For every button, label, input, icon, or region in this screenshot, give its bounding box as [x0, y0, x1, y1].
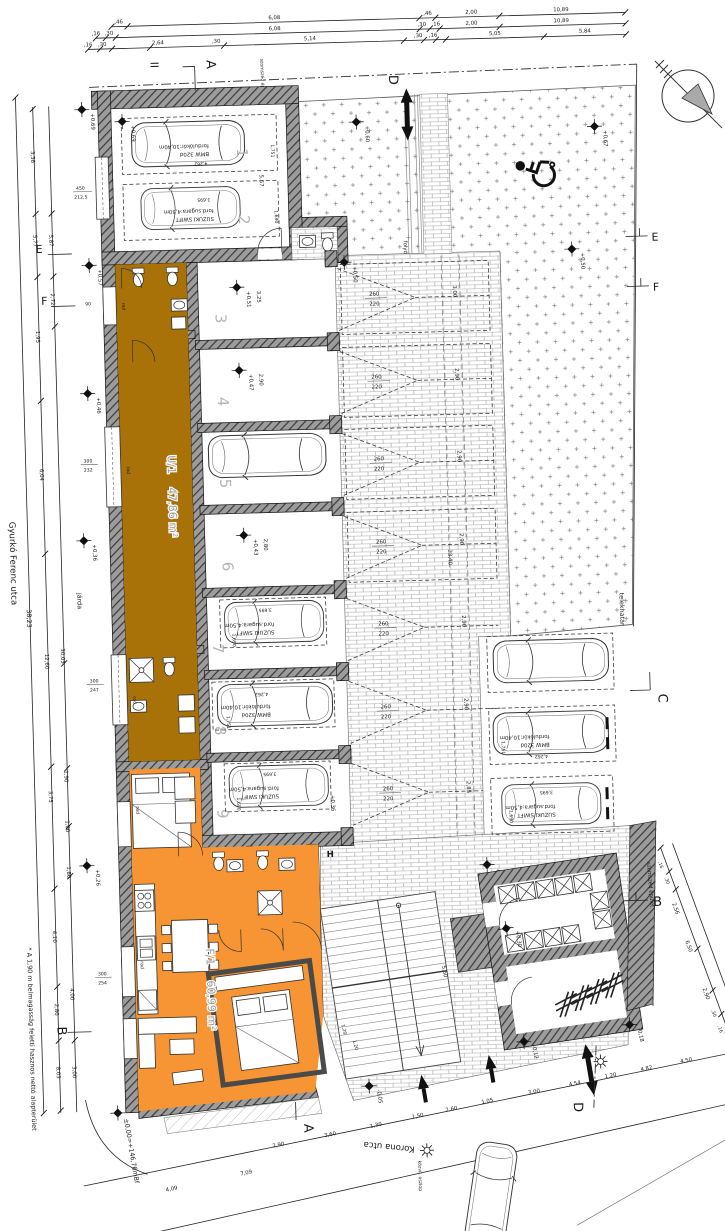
window-dim: 90	[85, 301, 91, 307]
section-marker-d-top: D	[385, 75, 400, 85]
radiator-label: rad	[120, 302, 126, 310]
level-label: +0,69	[129, 125, 135, 142]
section-marker-f-right: F	[653, 281, 660, 294]
lamp-post-icon	[420, 1143, 434, 1157]
dim-label: 2,00	[465, 21, 478, 27]
dim-label: 220	[372, 384, 383, 390]
door-opening	[258, 248, 282, 260]
dim-label: 2,80	[262, 539, 268, 552]
stove-icon	[135, 890, 155, 912]
car-label: BMW 320d	[242, 711, 271, 718]
level-label: +0,50	[351, 266, 357, 283]
stall-number: 9	[213, 809, 231, 819]
stall-number: 7	[209, 644, 227, 654]
dim-label: 1,690	[235, 797, 241, 810]
radiator-label: rad	[134, 806, 140, 814]
dim-label: 2,90	[453, 368, 459, 381]
dim-label: 4,82	[640, 1065, 653, 1073]
car-label: SUZUKI SWIFT	[240, 792, 279, 799]
street-name-bottom: Korona utca	[363, 1139, 415, 1154]
kitchen	[134, 884, 158, 1015]
car-label: BMW 320d	[180, 150, 209, 157]
dim-label: 260	[371, 374, 382, 380]
dim-label: 6,04	[38, 469, 44, 482]
level-label: +0,60	[363, 126, 369, 143]
dim-label: 1,50	[411, 1112, 425, 1120]
dim-label: ,30	[98, 42, 107, 48]
radiator-label: rad	[131, 696, 137, 704]
unit-name: F/1	[203, 948, 216, 965]
dim-label: 4,09	[165, 1185, 179, 1193]
window	[121, 946, 135, 996]
dim-label: ,30	[709, 1009, 717, 1018]
dim-label: 1,20	[604, 1072, 618, 1080]
window-dim: 300	[98, 971, 107, 977]
dim-label: 4,50	[680, 1057, 694, 1065]
dim-label: 1,05	[481, 1098, 494, 1106]
sink-icon	[299, 235, 315, 247]
note-label: * A 1,90 m belmagasság feletti hasznos n…	[25, 947, 38, 1131]
dim-label: ,30	[417, 22, 426, 28]
window-dim: 300	[84, 458, 93, 464]
dim-label: 5,05	[489, 31, 501, 37]
dim-label: 1,751	[269, 144, 275, 157]
level-label: +0,36	[329, 795, 335, 812]
dim-label: 2,90	[701, 987, 711, 1001]
level-mark	[114, 114, 129, 129]
dining-table	[171, 919, 208, 972]
dim-label: 6,08	[268, 15, 281, 21]
dim-label: 260	[381, 704, 392, 710]
dim-label: 2,80	[53, 1004, 59, 1017]
dim-label: ,46	[423, 11, 432, 17]
dim-label: 4,262	[255, 691, 268, 697]
stairs	[320, 892, 460, 1079]
dim-label: 260	[383, 786, 394, 792]
dim-label: 1,690	[508, 810, 514, 823]
dim-label: 8,03	[54, 1067, 60, 1079]
dim-label: 2,90	[455, 450, 461, 463]
dim-label: 1,00	[64, 820, 70, 833]
appliance	[178, 695, 194, 711]
dim-label: 1,30	[370, 1122, 384, 1130]
dim-label: 10,89	[553, 18, 569, 24]
dim-label: 2,60	[445, 1105, 459, 1113]
section-marker-b-left: B	[53, 1026, 68, 1035]
kitchen-sink-icon	[137, 936, 156, 960]
sink-icon	[279, 858, 295, 870]
sofa	[138, 1017, 196, 1035]
car-label: fordulókör:10,40m	[221, 703, 271, 711]
dim-label: 2,90	[458, 533, 464, 546]
window-dim: 254	[98, 980, 107, 986]
dim-label: 3,38	[29, 151, 35, 164]
dim-label: 220	[374, 466, 385, 472]
dim-label: 5,14	[304, 36, 317, 42]
dim-label: ,30	[414, 33, 423, 39]
dim-label: 220	[376, 549, 387, 555]
level-label: +0,57	[96, 269, 102, 286]
dim-label: 1,690	[273, 210, 279, 223]
dim-label: ,16	[431, 22, 440, 28]
h-mark: H	[327, 850, 334, 860]
level-label: +0,69	[89, 113, 95, 130]
section-marker-i: II	[147, 61, 160, 68]
radiator-label: rad	[125, 466, 131, 474]
level-label: -0,18	[636, 1028, 645, 1043]
window	[105, 427, 122, 507]
dim-label: 6,08	[269, 26, 282, 32]
stall-number: 1	[233, 148, 251, 158]
dim-label: 7,09	[240, 1169, 254, 1177]
car-label: fordulókör:10,40m	[159, 142, 209, 150]
dim-label: 220	[381, 714, 392, 720]
dim-label: 2,90	[460, 615, 466, 628]
dim-label: 220	[383, 796, 394, 802]
shower-icon	[258, 890, 283, 915]
dim-label: 4,54	[568, 1080, 582, 1088]
dim-label: ,16	[429, 33, 438, 39]
dim-label: 4,262	[194, 160, 207, 166]
dim-label: 4,00	[68, 988, 74, 1001]
car-label: SUZUKI SWIFT	[516, 811, 555, 818]
dim-label: 220	[378, 631, 389, 637]
car-label: fordulókör:10,40m	[500, 733, 550, 741]
dim-label: ,16	[716, 1025, 724, 1034]
dim-label: 3,695	[540, 789, 553, 795]
stall-number: 3	[212, 314, 230, 324]
lamp-label: közvil. oszlop	[416, 1161, 423, 1192]
level-label: +0,51	[245, 291, 251, 308]
dim-label: 260	[369, 291, 380, 297]
dim-label: 1,90	[62, 770, 68, 783]
dim-label: 2,90	[462, 698, 468, 711]
dim-label: 30,03	[59, 648, 65, 664]
dim-label: 5,84	[579, 28, 592, 34]
dim-label: 5,87	[47, 234, 53, 246]
stall-number: 6	[218, 561, 236, 571]
section-marker-b-right: B	[653, 895, 662, 910]
dim-label: 23,40	[446, 549, 452, 565]
street-car	[460, 1140, 521, 1231]
dim-label: ,46	[114, 19, 123, 25]
dim-label: 3,00	[70, 1066, 76, 1079]
appliance	[179, 717, 195, 733]
dim-label: 3,695	[259, 607, 272, 613]
compass-needle	[682, 84, 712, 114]
section-marker-a-bottom: A	[300, 1124, 315, 1133]
dim-label: 2,56	[670, 902, 680, 916]
datum-label: ±0,00=+146,76mBf	[122, 1118, 141, 1185]
sink-icon	[171, 299, 187, 311]
level-label: +0,67	[602, 130, 608, 147]
stall-number: 4	[214, 397, 232, 407]
level-label: +0,47	[247, 374, 253, 391]
window	[103, 287, 117, 325]
level-label: +0,43	[252, 539, 258, 556]
dim-label: 3,695	[197, 196, 210, 202]
dim-label: 260	[374, 456, 385, 462]
dim-label: 3,25	[255, 291, 261, 303]
sidewalk-label: járda	[75, 592, 83, 609]
garage-hall: fordulókör:10,40m BMW 320d 4,262 1,751 f…	[94, 110, 282, 265]
level-label: +0,46	[95, 397, 101, 414]
section-marker-e-left: E	[35, 243, 42, 256]
unit-name: U/1	[164, 455, 178, 474]
unit-area: 60,99 m²	[204, 980, 218, 1030]
sink-icon	[227, 859, 243, 871]
dim-label: 6,50	[683, 940, 693, 954]
property-line-label: telekhatár	[617, 593, 626, 626]
level-label: -0,05	[375, 1089, 383, 1104]
radiator-label: rad	[139, 961, 145, 969]
dim-label: 2,64	[152, 40, 165, 46]
dim-label: 5,57	[258, 175, 264, 187]
level-label: +0,26	[94, 869, 100, 886]
dim-label: 4,10	[51, 931, 57, 944]
window-dim: 212,5	[74, 195, 87, 201]
window	[123, 1018, 137, 1058]
car	[493, 635, 609, 686]
window-dim: 232	[84, 467, 93, 473]
car-label: SUZUKI SWIFT	[235, 628, 274, 635]
dim-label: 1,95	[34, 331, 40, 343]
level-label: +0,36	[91, 544, 97, 561]
dim-label: 2,90	[257, 374, 263, 387]
outbuilding: +0,30	[478, 853, 643, 1050]
tilted-site: telekhatár szomszéd épület folyóka 6,89 …	[0, 3, 725, 1231]
dim-label: 3,60	[324, 1131, 338, 1139]
section-marker-d-bottom: D	[570, 1102, 585, 1112]
floorplan-page: telekhatár szomszéd épület folyóka 6,89 …	[0, 0, 725, 1231]
dim-label: 3,00	[451, 285, 457, 298]
stall-number: 2	[235, 215, 253, 225]
section-marker-a-top: A	[202, 60, 217, 69]
level-label: +0,50	[579, 253, 585, 270]
window-dim: 247	[90, 687, 99, 693]
car-label: BMW 320d	[520, 741, 549, 748]
top-dimension-chain: ,46 6,08 ,46 2,00 10,89 ,16 ,30 6,08 ,30…	[83, 5, 629, 52]
north-compass	[655, 60, 722, 128]
dim-label: 3,695	[263, 770, 276, 776]
dim-label: 12,60	[43, 654, 49, 670]
dim-label: ,16	[656, 860, 664, 869]
car-bmw	[493, 707, 609, 758]
dim-label: 2,85	[465, 781, 471, 793]
dim-label: 10,89	[553, 7, 569, 13]
right-dimension-chain: ,16 ,30 2,56 6,50 2,90 ,30 ,16	[656, 842, 725, 1036]
stall-number: 5	[216, 479, 234, 489]
dim-label: 220	[369, 301, 380, 307]
section-marker-e-right: E	[651, 231, 658, 244]
dim-label: ,30	[663, 876, 671, 885]
shower-icon	[129, 658, 154, 683]
window	[117, 802, 131, 847]
dim-label: 1,751	[500, 741, 506, 754]
dim-label: 1,80	[65, 866, 71, 879]
dim-label: 3,75	[47, 791, 53, 803]
car-label: SUZUKI SWIFT	[175, 215, 214, 222]
dim-label: ,16	[92, 31, 101, 37]
dim-label: ,30	[105, 31, 114, 37]
site-plan-drawing: telekhatár szomszéd épület folyóka 6,89 …	[0, 0, 725, 1231]
dim-label: ,16	[84, 42, 93, 48]
window	[111, 655, 128, 725]
dim-label: 1,751	[225, 716, 231, 729]
street-name-left: Gyurkó Ferenc utca	[6, 522, 19, 606]
dim-label: 260	[378, 621, 389, 627]
dim-label: 3,00	[528, 1088, 542, 1096]
dim-label: ,30	[212, 39, 221, 45]
coffee-table	[170, 1039, 194, 1055]
outdoor-parking: fordulókör:10,40m BMW 320d 4,262 1,751 f…	[487, 633, 618, 834]
dim-label: 1,690	[230, 634, 236, 647]
dim-label: 260	[376, 539, 387, 545]
dim-label: 2,90	[272, 1141, 286, 1149]
dim-label: 38,23	[25, 609, 34, 628]
window-dim: 450	[76, 186, 85, 192]
unit-area: 47,86 m²	[165, 487, 179, 537]
dim-label: 2,72	[49, 293, 55, 305]
section-marker-f-left: F	[41, 295, 48, 308]
window-dim: 300	[90, 678, 99, 684]
car	[208, 430, 327, 481]
dim-label: 2,00	[465, 10, 478, 16]
dim-label: 4,262	[535, 753, 548, 759]
section-marker-c: C	[654, 693, 669, 702]
appliance	[172, 317, 186, 329]
